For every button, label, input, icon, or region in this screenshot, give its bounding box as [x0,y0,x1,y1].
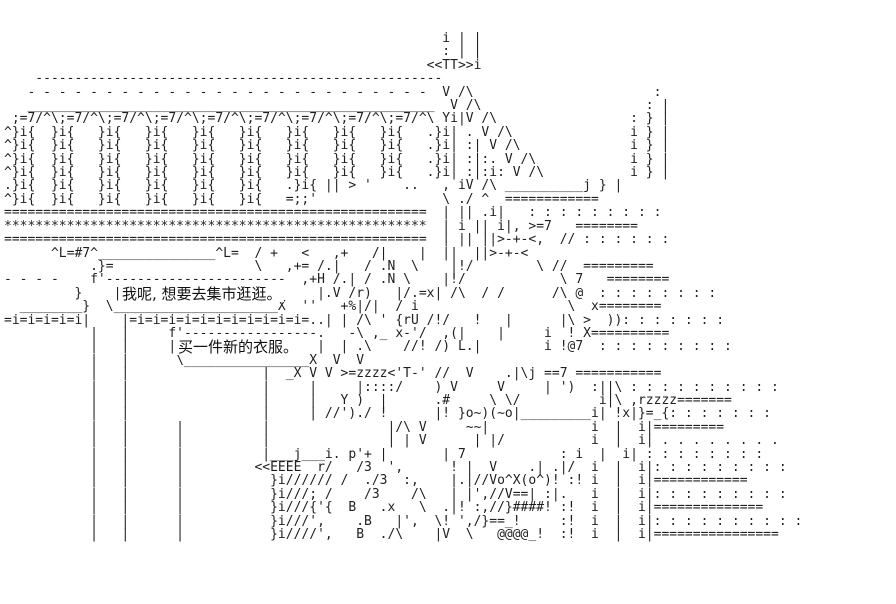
ascii-scene: i | | : | | <<TT>>i --------------------… [0,0,896,604]
speech-bubble-1-text: 我呢, 想要去集市逛逛。 [120,287,284,302]
speech-bubble-2-text: 买一件新的衣服。 [176,340,300,355]
